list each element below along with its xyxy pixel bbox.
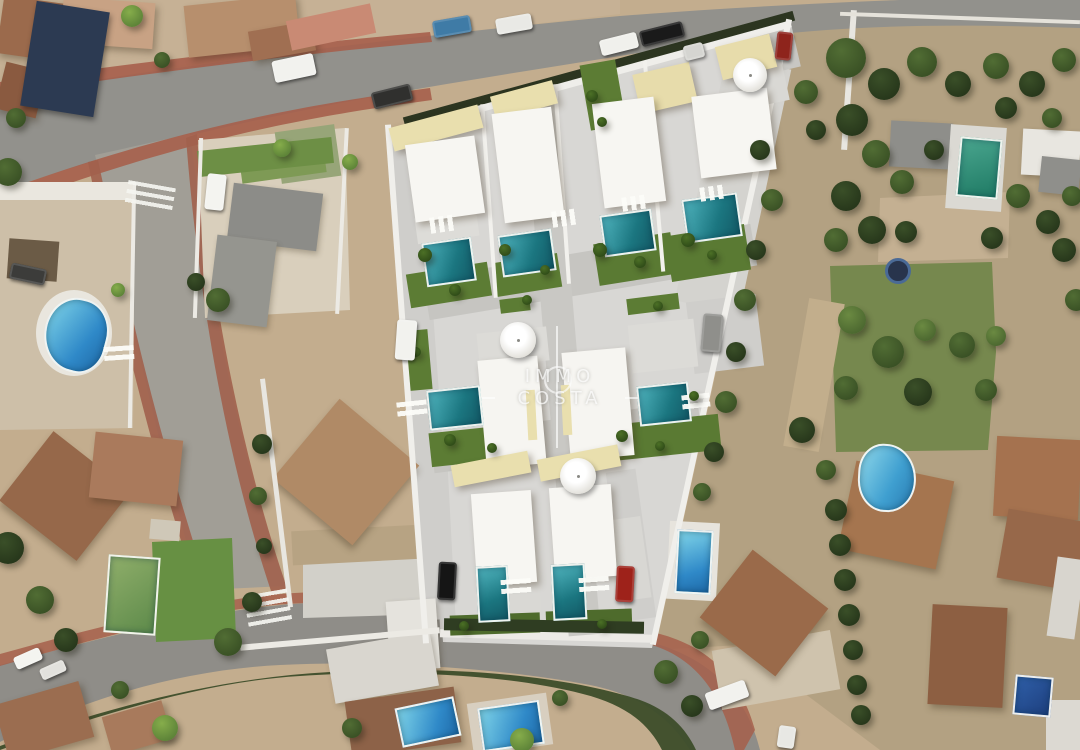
tree (689, 391, 699, 401)
tree (111, 283, 125, 297)
tree (829, 534, 851, 556)
tree (152, 715, 178, 741)
tree (54, 628, 78, 652)
terrace-br (1046, 700, 1080, 750)
tree (949, 332, 975, 358)
tree (826, 38, 866, 78)
villa4-white-roof (691, 88, 776, 179)
tree (444, 434, 456, 446)
tree (707, 250, 717, 260)
tree (459, 621, 469, 631)
villaM2-white-roof (561, 347, 634, 460)
lawn-c4 (152, 538, 236, 642)
villaM2-patio (628, 319, 699, 374)
tree (616, 430, 628, 442)
tree (836, 104, 868, 136)
villa1-white-roof (405, 136, 485, 223)
tree (834, 376, 858, 400)
tree (750, 140, 770, 160)
tree (342, 718, 362, 738)
tree (794, 80, 818, 104)
tree (693, 483, 711, 501)
tree (831, 181, 861, 211)
tree (154, 52, 170, 68)
tree (552, 690, 568, 706)
tree (1062, 186, 1080, 206)
villaB2-loungers (578, 576, 609, 594)
tree (681, 695, 703, 717)
tree (1065, 289, 1080, 311)
tree (806, 120, 826, 140)
tree (715, 391, 737, 413)
roofline-c3 (0, 182, 132, 200)
tree (838, 306, 866, 334)
villaM1-umbrella (500, 322, 536, 358)
tree (843, 640, 863, 660)
tree (655, 441, 665, 451)
tree (825, 499, 847, 521)
pool-br-dark (1012, 674, 1053, 717)
pool-se (674, 529, 713, 595)
tree (981, 227, 1003, 249)
villa3-pool (599, 209, 656, 258)
tree (252, 434, 272, 454)
tree (654, 660, 678, 684)
tree (824, 228, 848, 252)
tree (206, 288, 230, 312)
shed-c4 (149, 519, 181, 542)
car-white-dev-mid (395, 319, 418, 360)
tree (522, 295, 532, 305)
tree (904, 378, 932, 406)
tree (1006, 184, 1030, 208)
tree (499, 244, 511, 256)
roof-e-far-1 (993, 436, 1080, 520)
tree (1052, 238, 1076, 262)
tree (847, 675, 867, 695)
tree (449, 284, 461, 296)
pool-c4-green (103, 554, 160, 635)
car-white-bottom-edge (777, 725, 797, 749)
tree (1042, 108, 1062, 128)
car-gray-dev-mid (700, 313, 723, 353)
tree (746, 240, 766, 260)
car-red-dev-bottom (615, 566, 635, 603)
tree (862, 140, 890, 168)
tree (924, 140, 944, 160)
tree (945, 71, 971, 97)
tree (890, 170, 914, 194)
tree (914, 319, 936, 341)
villa1-pool (421, 237, 477, 288)
tree (983, 53, 1009, 79)
villaB2-umbrella (560, 458, 596, 494)
aerial-photo: IMMO COSTA (0, 0, 1080, 750)
car-white-c2 (204, 173, 227, 211)
tree (681, 233, 695, 247)
tree (242, 592, 262, 612)
tree (342, 154, 358, 170)
car-black-dev-bottom (437, 562, 457, 601)
tree (907, 47, 937, 77)
tree (214, 628, 242, 656)
tree (1019, 71, 1045, 97)
tree (975, 379, 997, 401)
villa3-white-roof (592, 97, 666, 209)
tree (256, 538, 272, 554)
tree (1036, 210, 1060, 234)
roof-ne-gray (889, 120, 953, 169)
loungers-c3 (104, 345, 135, 361)
tree (510, 728, 534, 750)
tree (691, 631, 709, 649)
trampoline (885, 258, 911, 284)
tree (816, 460, 836, 480)
tree (734, 289, 756, 311)
tree (653, 301, 663, 311)
tree (726, 342, 746, 362)
tree (540, 265, 550, 275)
tree (187, 273, 205, 291)
villaM1-loungers (396, 399, 428, 418)
tree (26, 586, 54, 614)
tree (634, 256, 646, 268)
villaM1-pool (426, 385, 484, 430)
tree (838, 604, 860, 626)
tree (1052, 48, 1076, 72)
roof-c4-2 (89, 432, 183, 507)
tree (895, 221, 917, 243)
tree (121, 5, 143, 27)
tree (273, 139, 291, 157)
tree (6, 108, 26, 128)
car-red-dev-ne (775, 31, 794, 61)
roof-c2-gray-2 (207, 235, 277, 328)
roof-se-big (927, 604, 1007, 708)
tree (597, 117, 607, 127)
tree (872, 336, 904, 368)
tree (586, 90, 598, 102)
east-lawn (830, 262, 996, 452)
tree (851, 705, 871, 725)
tree (858, 216, 886, 244)
tree (593, 243, 607, 257)
tree (487, 443, 497, 453)
tree (761, 189, 783, 211)
tree (418, 248, 432, 262)
villaB1-loungers (500, 578, 531, 596)
tree (597, 619, 607, 629)
tree (995, 97, 1017, 119)
tree (868, 68, 900, 100)
tree (111, 681, 129, 699)
tree (789, 417, 815, 443)
villa4-umbrella (733, 58, 767, 92)
tree (986, 326, 1006, 346)
tree (249, 487, 267, 505)
tree (834, 569, 856, 591)
tree (704, 442, 724, 462)
lap-pool-ne (955, 136, 1002, 199)
